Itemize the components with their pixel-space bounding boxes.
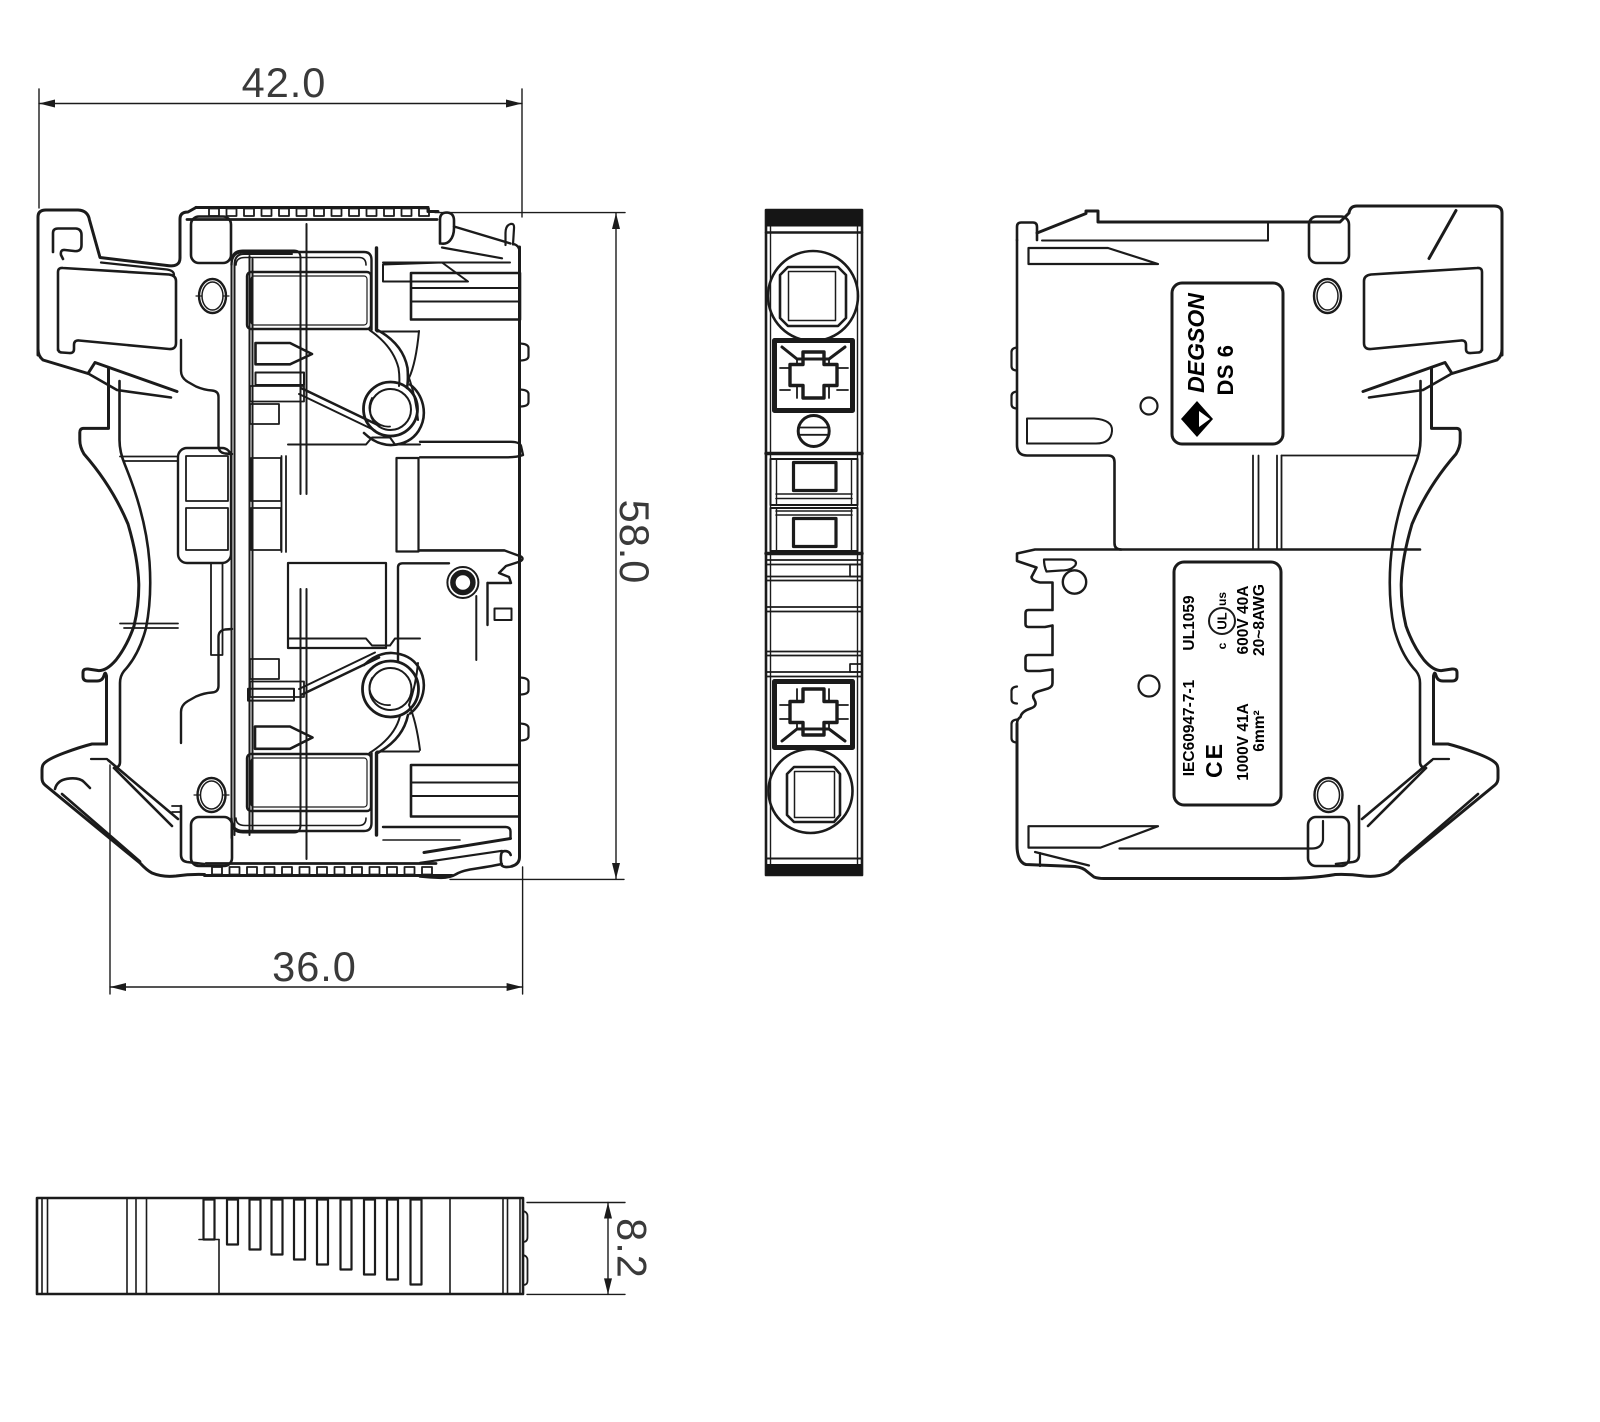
svg-text:UL1059: UL1059 [1181,595,1198,651]
svg-text:CE: CE [1201,742,1227,778]
svg-text:600V 40A: 600V 40A [1235,586,1252,655]
svg-text:6mm²: 6mm² [1251,710,1268,751]
svg-text:20~8AWG: 20~8AWG [1251,584,1268,656]
svg-text:DEGSON: DEGSON [1183,293,1209,393]
svg-text:UL: UL [1215,612,1230,629]
svg-text:c: c [1215,642,1229,649]
svg-text:IEC60947-7-1: IEC60947-7-1 [1181,679,1198,776]
svg-text:DS 6: DS 6 [1213,345,1238,396]
svg-text:42.0: 42.0 [242,59,327,106]
svg-text:8.2: 8.2 [609,1218,656,1279]
svg-text:36.0: 36.0 [272,943,357,990]
svg-text:1000V 41A: 1000V 41A [1235,703,1252,781]
svg-text:us: us [1215,592,1229,606]
svg-text:58.0: 58.0 [611,500,658,585]
